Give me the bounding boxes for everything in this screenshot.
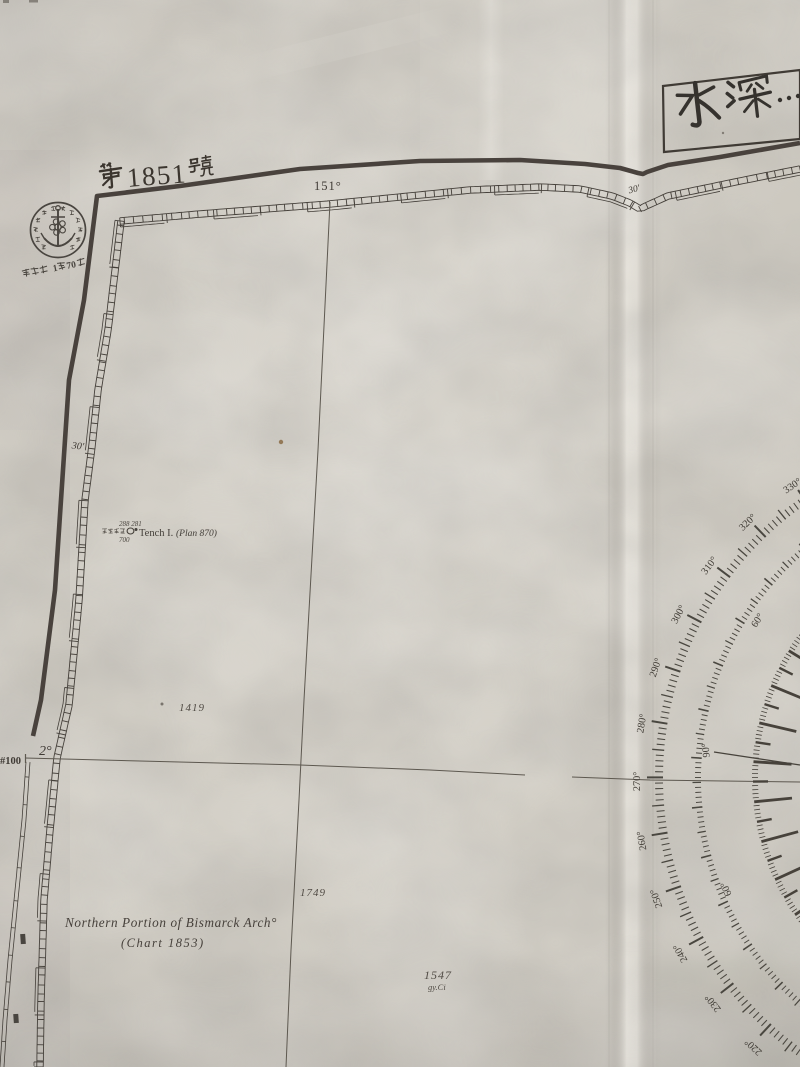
svg-text:Tench I.: Tench I. xyxy=(139,528,173,539)
svg-text:#100: #100 xyxy=(0,756,21,767)
svg-text:gy.Ci: gy.Ci xyxy=(428,982,446,992)
svg-text:270°: 270° xyxy=(632,772,643,791)
svg-text:Northern Portion of Bismarck A: Northern Portion of Bismarck Arch° xyxy=(64,915,277,930)
svg-text:1547: 1547 xyxy=(424,968,452,982)
svg-text:2°: 2° xyxy=(39,744,52,759)
svg-text:30′: 30′ xyxy=(70,440,85,452)
svg-text:90°: 90° xyxy=(700,743,712,758)
svg-text:151°: 151° xyxy=(314,179,342,193)
svg-text:1419: 1419 xyxy=(179,702,205,714)
svg-text:288 281: 288 281 xyxy=(119,520,142,528)
svg-text:700: 700 xyxy=(119,536,130,544)
svg-text:(Plan 870): (Plan 870) xyxy=(176,528,217,539)
svg-text:1749: 1749 xyxy=(300,887,326,899)
svg-text:(Chart 1853): (Chart 1853) xyxy=(121,936,205,950)
svg-text:1851: 1851 xyxy=(126,158,188,193)
